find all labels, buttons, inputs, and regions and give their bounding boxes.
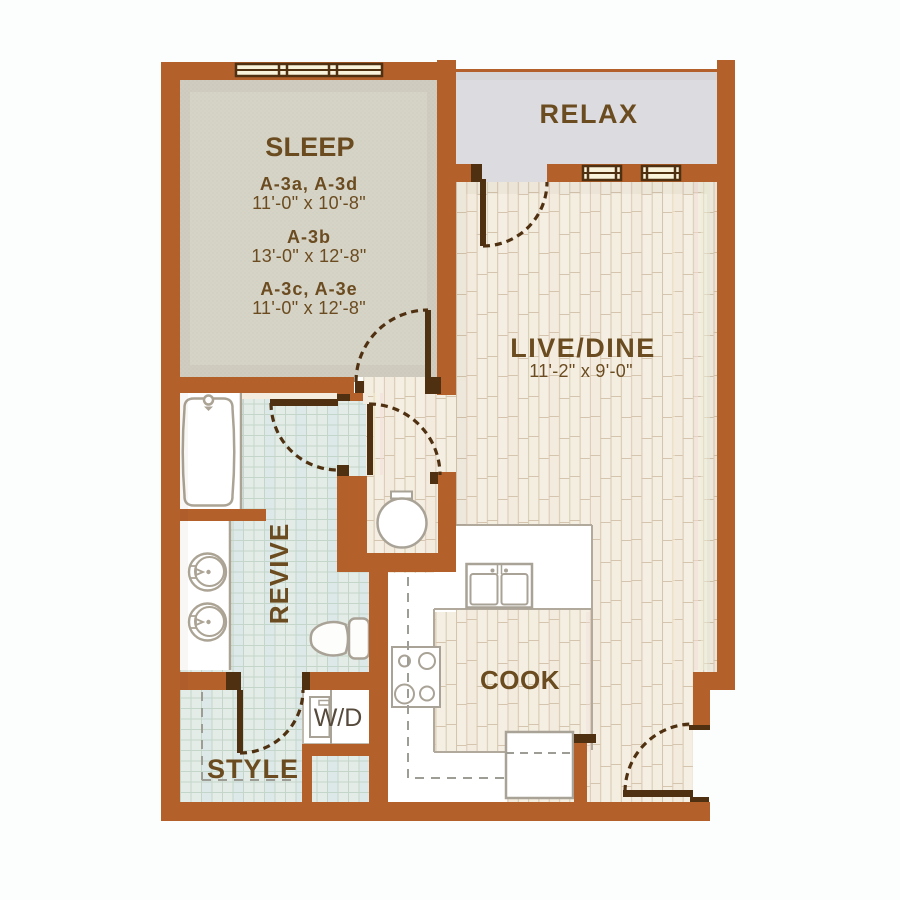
svg-text:W/D: W/D [314,704,363,732]
svg-text:11'-0" x 12'-8": 11'-0" x 12'-8" [252,298,366,318]
svg-text:REVIVE: REVIVE [264,523,294,624]
svg-text:A-3c, A-3e: A-3c, A-3e [260,279,357,299]
svg-text:COOK: COOK [480,665,560,695]
svg-text:STYLE: STYLE [207,754,299,784]
svg-text:13'-0" x 12'-8": 13'-0" x 12'-8" [251,246,366,266]
svg-text:11'-0" x 10'-8": 11'-0" x 10'-8" [252,193,366,213]
svg-text:11'-2" x 9'-0": 11'-2" x 9'-0" [529,361,633,381]
svg-text:RELAX: RELAX [539,99,638,129]
svg-text:A-3b: A-3b [287,227,331,247]
svg-text:A-3a, A-3d: A-3a, A-3d [260,174,358,194]
svg-text:LIVE/DINE: LIVE/DINE [510,333,656,363]
svg-text:SLEEP: SLEEP [265,132,355,162]
